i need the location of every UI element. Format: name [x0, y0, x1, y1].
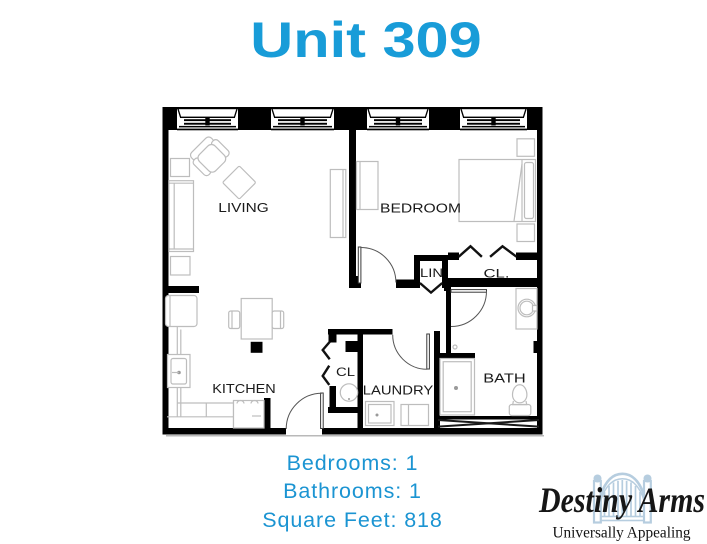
- svg-text:CL.: CL.: [484, 266, 510, 280]
- svg-text:KITCHEN: KITCHEN: [212, 381, 276, 396]
- svg-text:BATH: BATH: [483, 371, 526, 386]
- svg-text:LIN: LIN: [420, 266, 443, 280]
- svg-text:Universally Appealing: Universally Appealing: [553, 525, 691, 542]
- svg-text:LAUNDRY: LAUNDRY: [363, 383, 434, 398]
- svg-text:BEDROOM: BEDROOM: [380, 200, 461, 215]
- svg-text:LIVING: LIVING: [218, 200, 269, 215]
- svg-text:Destiny Arms: Destiny Arms: [538, 480, 705, 520]
- svg-text:CL: CL: [336, 365, 355, 379]
